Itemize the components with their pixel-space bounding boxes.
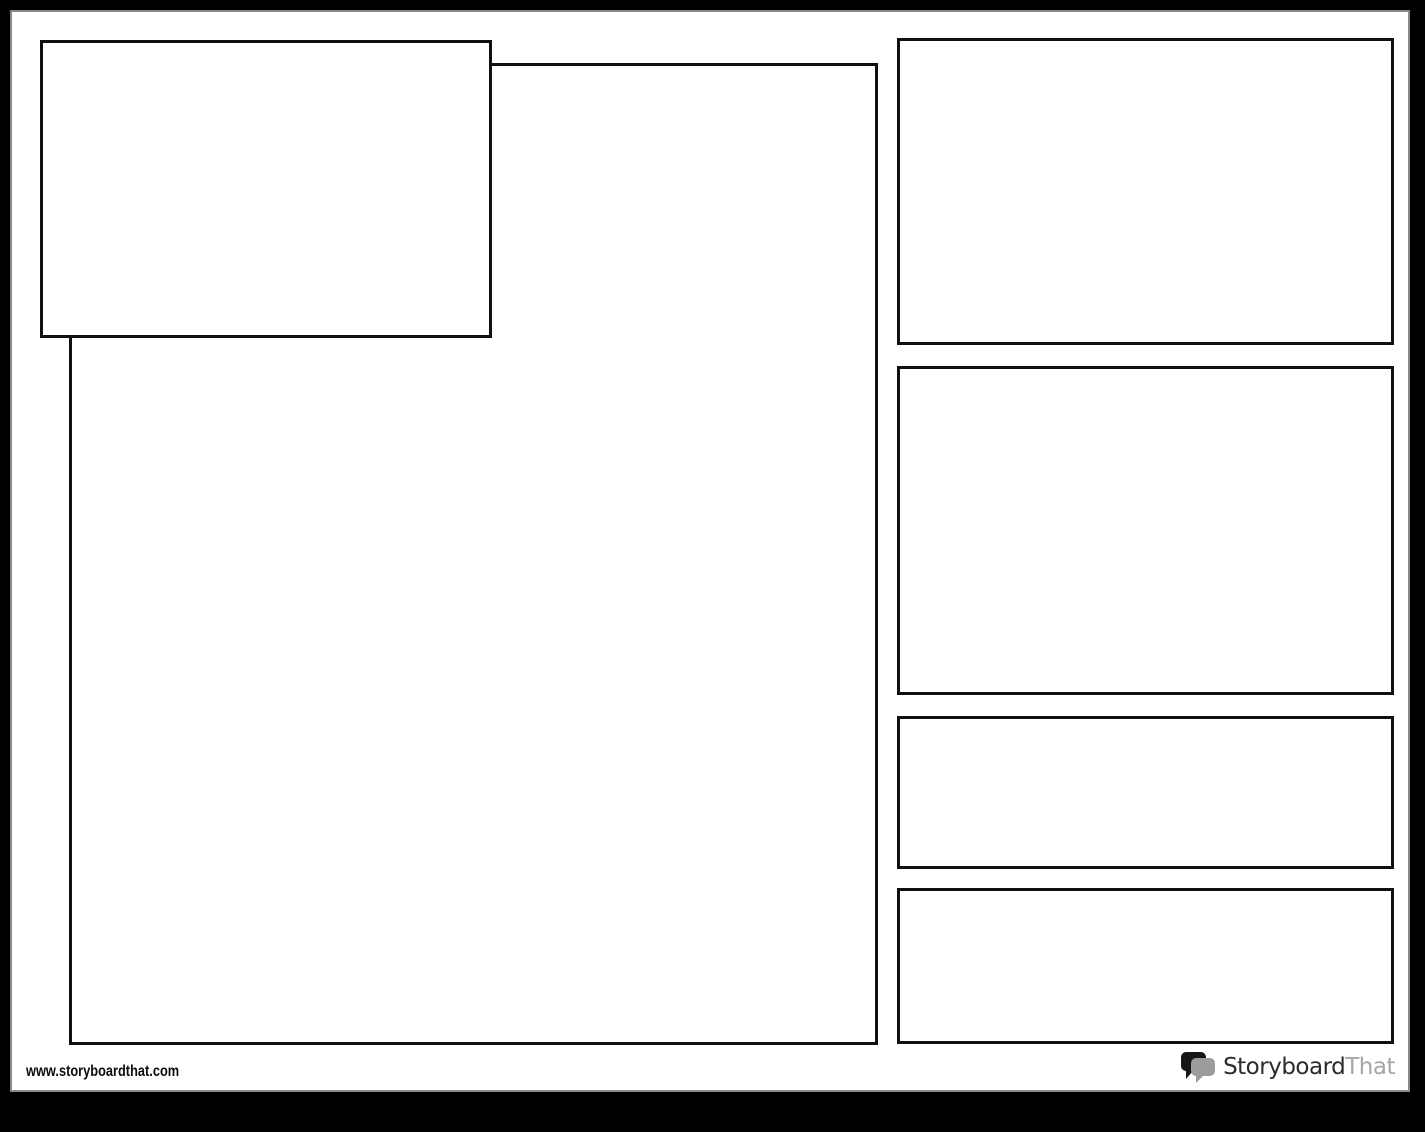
brand-text: StoryboardThat: [1223, 1051, 1395, 1083]
side-cell-2[interactable]: [897, 366, 1394, 695]
brand-name-that: That: [1345, 1054, 1395, 1080]
side-cell-3[interactable]: [897, 716, 1394, 869]
brand-logo: StoryboardThat: [1180, 1051, 1395, 1083]
title-cell[interactable]: [40, 40, 492, 338]
side-cell-4[interactable]: [897, 888, 1394, 1044]
worksheet-canvas: www.storyboardthat.com StoryboardThat: [0, 0, 1425, 1132]
brand-name-storyboard: Storyboard: [1223, 1054, 1345, 1080]
footer-url: www.storyboardthat.com: [26, 1063, 179, 1081]
side-cell-1[interactable]: [897, 38, 1394, 345]
speech-bubbles-icon: [1180, 1051, 1216, 1083]
